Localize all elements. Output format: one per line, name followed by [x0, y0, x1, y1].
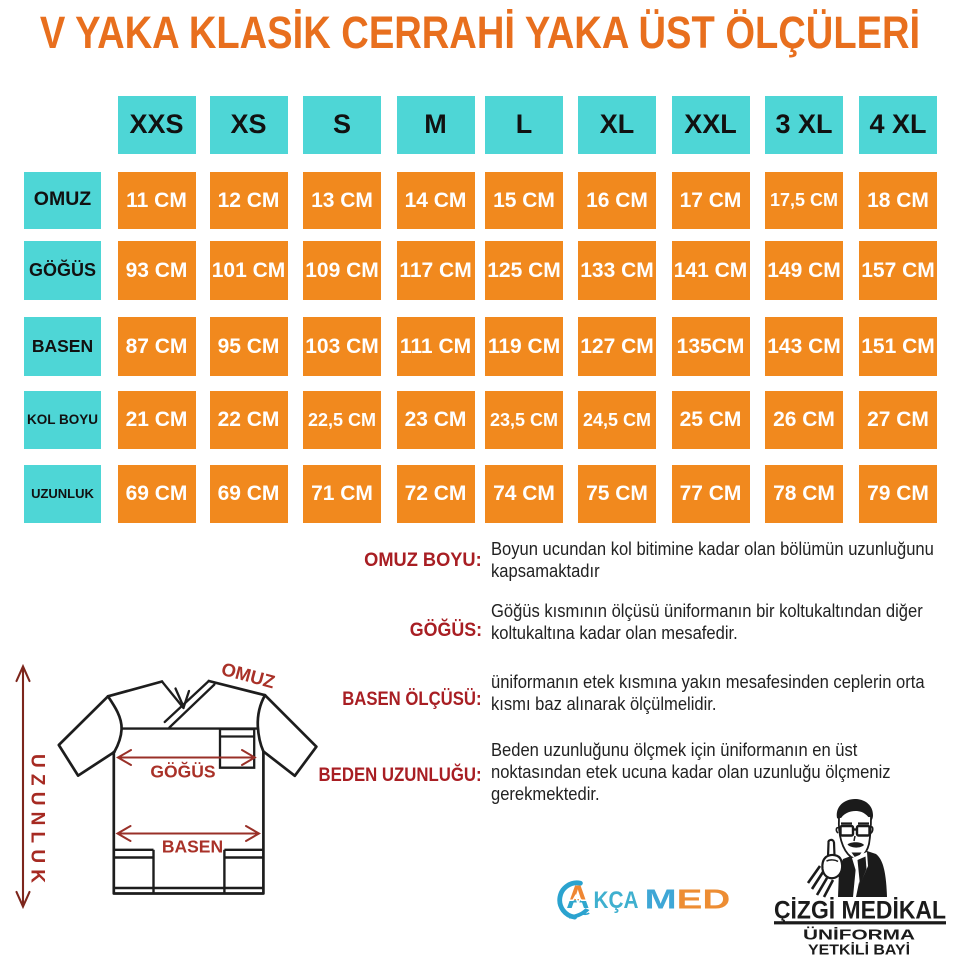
svg-text:BASEN: BASEN	[162, 837, 223, 857]
svg-text:MED: MED	[644, 884, 730, 916]
svg-text:OMUZ: OMUZ	[219, 658, 277, 692]
svg-text:GÖĞÜS: GÖĞÜS	[150, 761, 215, 782]
svg-text:ÇİZGİ MEDİKAL: ÇİZGİ MEDİKAL	[774, 897, 946, 925]
svg-text:YETKİLİ BAYİ: YETKİLİ BAYİ	[808, 942, 910, 959]
svg-text:KÇA: KÇA	[594, 887, 639, 914]
svg-text:UZUNLUK: UZUNLUK	[27, 754, 48, 883]
